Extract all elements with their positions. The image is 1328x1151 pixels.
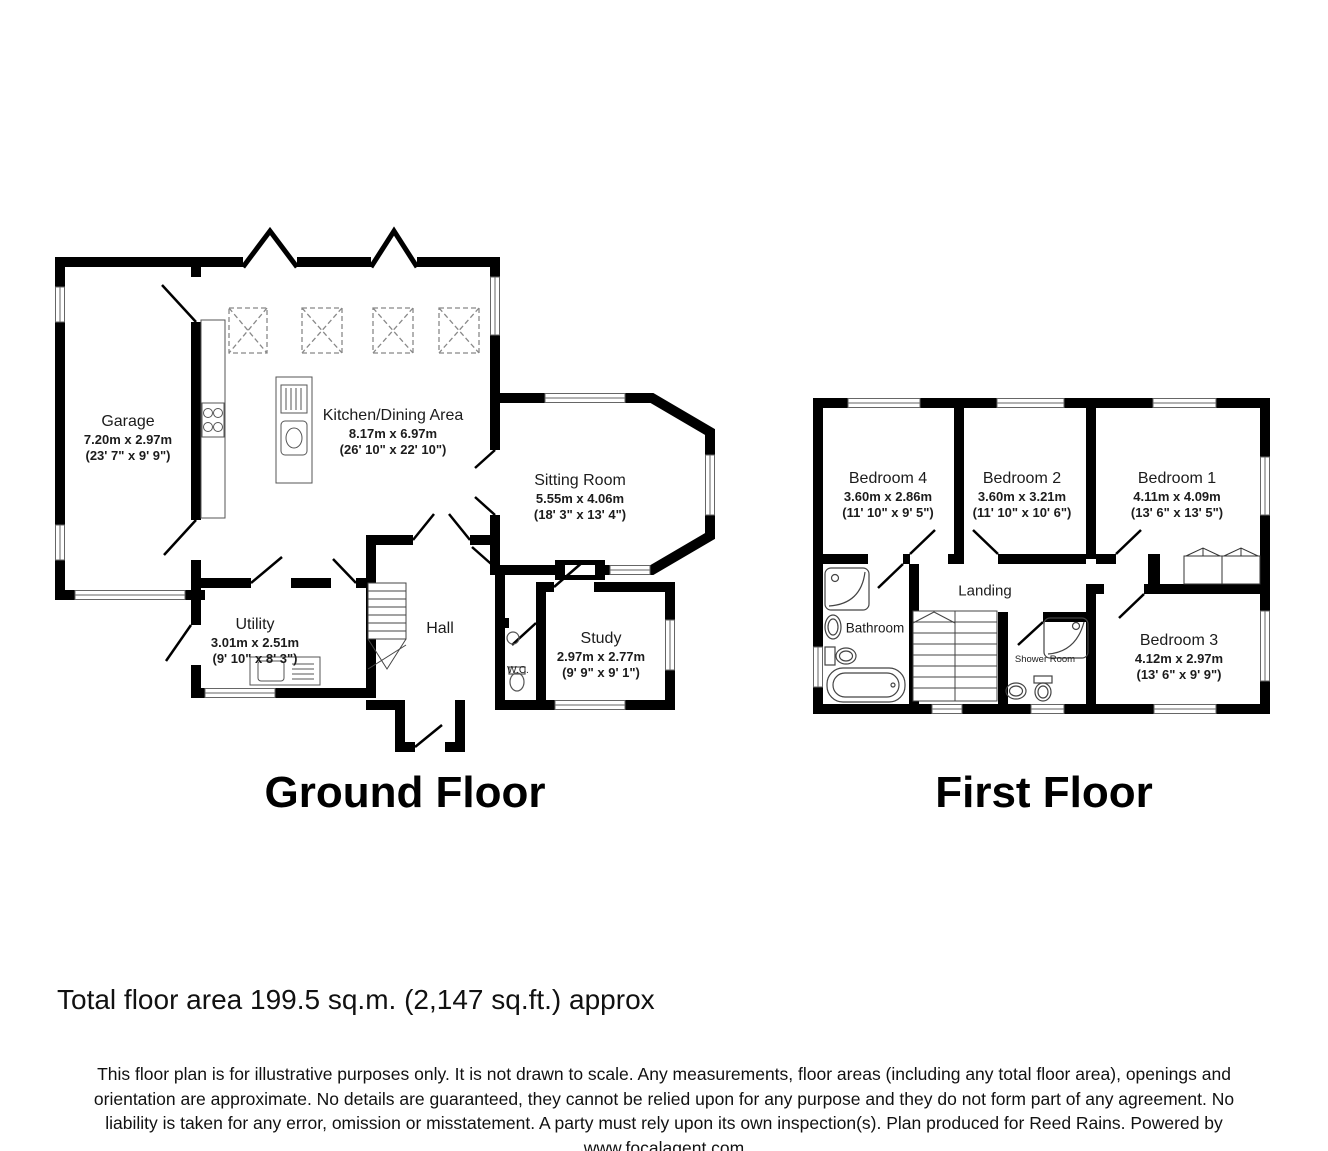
room-label-bedroom2: Bedroom 2 3.60m x 3.21m (11' 10" x 10' 6…: [973, 469, 1072, 522]
ground-floor-title: Ground Floor: [264, 768, 545, 818]
disclaimer-line-2: orientation are approximate. No details …: [0, 1087, 1328, 1112]
shower-icon: [1044, 618, 1088, 658]
room-label-bedroom1: Bedroom 1 4.11m x 4.09m (13' 6" x 13' 5"…: [1131, 469, 1223, 522]
ground-floor-drawing: [50, 225, 765, 765]
room-label-sitting-room: Sitting Room 5.55m x 4.06m (18' 3" x 13'…: [534, 471, 626, 524]
first-floor-title: First Floor: [935, 768, 1153, 818]
first-floor-plan: Bedroom 4 3.60m x 2.86m (11' 10" x 9' 5"…: [808, 390, 1278, 720]
ground-floor-plan: Garage 7.20m x 2.97m (23' 7" x 9' 9") Ki…: [50, 225, 765, 765]
disclaimer-line-3: liability is taken for any error, omissi…: [0, 1111, 1328, 1136]
room-label-wc: W.C.: [507, 665, 529, 678]
landing-stairs-icon: [913, 611, 997, 701]
disclaimer-text: This floor plan is for illustrative purp…: [0, 1062, 1328, 1151]
disclaimer-line-4: www.focalagent.com: [0, 1136, 1328, 1151]
island-sink-icon: [281, 421, 307, 455]
room-label-bedroom3: Bedroom 3 4.12m x 2.97m (13' 6" x 9' 9"): [1135, 631, 1223, 684]
corner-shower-icon: [825, 568, 869, 610]
room-label-bedroom4: Bedroom 4 3.60m x 2.86m (11' 10" x 9' 5"…: [842, 469, 934, 522]
kitchen-counter: [201, 320, 225, 518]
room-label-hall: Hall: [426, 619, 454, 639]
shower-room-toilet-icon: [1034, 676, 1052, 683]
room-label-utility: Utility 3.01m x 2.51m (9' 10" x 8' 3"): [211, 615, 299, 668]
wardrobe-icons: [1184, 548, 1260, 584]
floor-plan-page: Garage 7.20m x 2.97m (23' 7" x 9' 9") Ki…: [0, 0, 1328, 1151]
bathroom-toilet-icon: [825, 647, 835, 665]
total-floor-area-text: Total floor area 199.5 sq.m. (2,147 sq.f…: [57, 984, 655, 1016]
kitchen-island: [276, 377, 312, 483]
hob-icon: [202, 403, 224, 437]
room-label-bathroom: Bathroom: [846, 621, 905, 638]
room-label-study: Study 2.97m x 2.77m (9' 9" x 9' 1"): [557, 629, 645, 682]
room-label-landing: Landing: [958, 583, 1011, 602]
wc-sink-icon: [507, 632, 519, 644]
room-label-shower-room: Shower Room: [1015, 654, 1075, 666]
room-label-garage: Garage 7.20m x 2.97m (23' 7" x 9' 9"): [84, 412, 172, 465]
room-label-kitchen: Kitchen/Dining Area 8.17m x 6.97m (26' 1…: [323, 406, 464, 459]
skylight-icons: [229, 308, 479, 353]
disclaimer-line-1: This floor plan is for illustrative purp…: [0, 1062, 1328, 1087]
